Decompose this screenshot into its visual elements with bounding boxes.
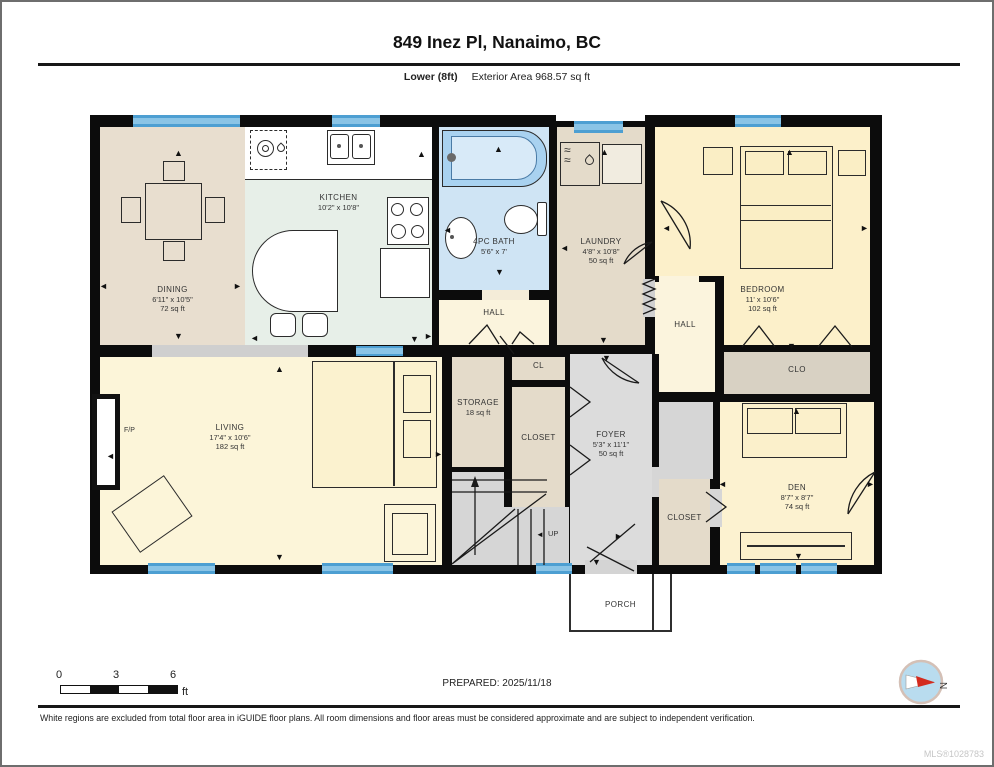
floorplan-page: 849 Inez Pl, Nanaimo, BC Lower (8ft)Exte… [0, 0, 994, 767]
mls-number: MLS®1028783 [924, 749, 984, 759]
arrow-icon: ▼ [599, 336, 608, 345]
arrow-icon: ◄ [106, 452, 115, 461]
arrow-icon: ▲ [600, 148, 609, 157]
floor-subtitle: Lower (8ft)Exterior Area 968.57 sq ft [2, 71, 992, 83]
arrow-icon: ▼ [410, 335, 419, 344]
arrow-icon: ◄ [662, 224, 671, 233]
header-divider [38, 63, 960, 66]
arrow-icon: ▼ [495, 268, 504, 277]
compass-icon: N [894, 656, 954, 712]
arrow-icon: ◄ [718, 480, 727, 489]
arrow-icon: ▼ [275, 553, 284, 562]
prepared-date: PREPARED: 2025/11/18 [2, 678, 992, 689]
plan-linework [90, 115, 882, 574]
arrow-icon: ▼ [787, 342, 796, 351]
arrow-icon: ▼ [592, 558, 601, 567]
arrow-icon: ◄ [443, 226, 452, 235]
arrow-icon: ▲ [792, 407, 801, 416]
arrow-icon: ▲ [494, 145, 503, 154]
arrow-icon: ► [434, 450, 443, 459]
arrow-icon: ▼ [794, 552, 803, 561]
arrow-icon: ◄ [99, 282, 108, 291]
arrow-icon: ▲ [417, 150, 426, 159]
floor-label: Lower (8ft) [404, 71, 458, 83]
arrow-icon: ◄ [250, 334, 259, 343]
arrow-icon: ► [614, 532, 623, 541]
arrow-icon: ◄ [536, 531, 544, 539]
floor-plan: F/P [90, 115, 882, 574]
arrow-icon: ▲ [174, 149, 183, 158]
disclaimer-text: White regions are excluded from total fl… [40, 713, 940, 723]
porch-label: PORCH [571, 600, 670, 610]
arrow-icon: ▲ [275, 365, 284, 374]
arrow-icon: ► [424, 332, 433, 341]
porch-post-line [652, 574, 654, 630]
arrow-icon: ▼ [602, 354, 611, 363]
arrow-icon: ► [233, 282, 242, 291]
compass-north-label: N [937, 682, 948, 689]
stairs-up-arrowhead [471, 476, 479, 487]
footer-divider [38, 705, 960, 708]
stairs-up-label: UP [548, 529, 558, 538]
arrow-icon: ▼ [174, 332, 183, 341]
arrow-icon: ▲ [785, 148, 794, 157]
arrow-icon: ► [866, 480, 875, 489]
arrow-icon: ► [860, 224, 869, 233]
page-title: 849 Inez Pl, Nanaimo, BC [2, 32, 992, 53]
room-porch: PORCH [569, 572, 672, 632]
arrow-icon: ◄ [560, 244, 569, 253]
exterior-area-label: Exterior Area 968.57 sq ft [472, 71, 590, 83]
